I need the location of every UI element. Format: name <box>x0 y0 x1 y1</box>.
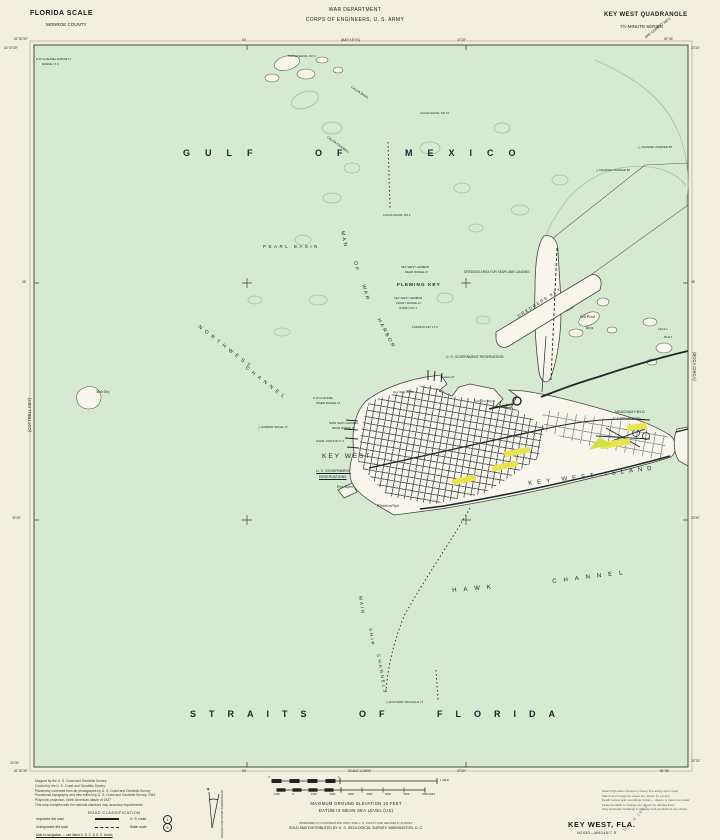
edge-coordinate: 35′ <box>691 281 695 284</box>
label-garrison-bight: Garrison Bight <box>474 400 495 404</box>
credit-line: Polyconic projection. North American dat… <box>35 798 111 802</box>
sheet-department: WAR DEPARTMENT <box>329 7 381 13</box>
state-route-badge: 5 <box>163 823 172 832</box>
sold-note: SOLD AND DISTRIBUTED BY U. S. GEOLOGICAL… <box>289 826 423 830</box>
label-mule-key: Mule Key <box>96 391 110 395</box>
marginal-note-line: Mean high water shown by heavy line alon… <box>602 789 678 793</box>
label-of: OF <box>352 261 359 273</box>
scale-feet-tick: 6000 <box>404 793 410 796</box>
edge-coordinate: 37′30″ <box>691 47 700 50</box>
scale-feet-tick: 2000 <box>330 793 336 796</box>
label-seaplane-area: DREDGED AREA FOR SEAPLANE LANDING <box>464 271 530 274</box>
label-front-range-3: (FIXED) NO 1 <box>399 307 417 310</box>
elevation-note: MAXIMUM GROUND ELEVATION 10 FEET <box>310 801 401 806</box>
edge-coordinate: 35′ <box>22 281 26 284</box>
scale-mile-end: 1 MILE <box>440 778 449 782</box>
label-fort-taylor: Fort Taylor <box>337 486 354 490</box>
edge-coordinate: 32′30″ <box>12 517 21 520</box>
label-front-range-2: FRONT RANGE LT <box>396 302 421 305</box>
label-msc-range-1: MAIN SHIP CHANNEL <box>329 422 358 425</box>
edge-coordinate: 50′ <box>242 39 246 42</box>
edge-coordinate: 32′30″ <box>691 517 700 520</box>
label-fleming-key: FLEMING KEY <box>397 283 441 288</box>
label-us-govt-2: RESERVATIONS <box>319 476 347 480</box>
scale-feet-tick: 4000 <box>367 793 373 796</box>
road-class-row1-right: U. S. route <box>130 817 146 821</box>
label-harbor-shoal-lt: △ HARBOR SHOAL LT <box>258 426 288 429</box>
label-gulf-of-mexico: GULF OF MEXICO <box>183 149 531 158</box>
label-key-west-bight: Key West Bight <box>393 391 414 395</box>
edge-coordinate: 81°45′ <box>660 770 669 773</box>
marginal-note-line: Marsh and mangrove areas are shown by sy… <box>602 794 670 798</box>
label-inner-range-2: INNER RANGE LT <box>316 402 340 405</box>
edge-coordinate: 47′30″ <box>457 39 466 42</box>
navigation-note: Aids to navigation — see latest U. S. C.… <box>36 833 113 837</box>
credit-line: Provisional topography and new edition b… <box>35 793 155 797</box>
quad-title: KEY WEST QUADRANGLE <box>604 12 688 18</box>
road-class-row1-label: Improved dirt road <box>36 817 64 821</box>
label-us-govt-1: U. S. GOVERNMENT <box>316 470 351 474</box>
sheet-designation: N2430—W8145/7.5 <box>577 831 616 835</box>
label-calda-shoal-10: CALDA SHOAL NO 10 <box>420 112 449 115</box>
credit-line: Control by the U. S. Coast and Geodetic … <box>35 784 105 788</box>
map-sheet: { "colors":{"paper":"#f2efe1","water":"#… <box>0 0 720 840</box>
label-scale-caption: SCALE 1:24000 <box>348 770 371 773</box>
label-fleming-lt: FLEMING KEY LT 2 <box>412 326 438 329</box>
label-rear-range-2: REAR RANGE LT <box>405 271 428 274</box>
label-straits-of-florida: STRAITS OF FLORIDA <box>190 710 568 719</box>
declination-diagram <box>209 792 219 828</box>
scale-feet-tick: 0 <box>293 793 294 796</box>
edge-coordinate: 24°37′30″ <box>4 47 18 50</box>
label-govt-reservation: U. S. GOVERNMENT RESERVATION <box>446 356 503 360</box>
adjoining-sheet-right: (BOCA CHICA) <box>692 352 697 381</box>
declination-star-icon: ✶ <box>206 787 210 793</box>
road-class-row2-label: Unimproved dirt road <box>36 825 68 829</box>
label-inner-range-1: N W CHANNEL <box>313 397 333 400</box>
edge-coordinate: 50′ <box>242 770 246 773</box>
sheet-county: MONROE COUNTY <box>46 22 87 27</box>
label-nw-elbow-lt: N W CHANNEL ELBOW LT <box>36 58 71 61</box>
adjoining-sheet-top: (BAY KEYS) <box>341 38 360 42</box>
label-bird-island: Bird I. <box>664 336 673 340</box>
marginal-note-line: Depth curves and soundings in feet — dat… <box>602 798 690 802</box>
label-front-range-1: KEY WEST HARBOR <box>394 297 422 300</box>
datum-note: DATUM IS MEAN SEA LEVEL (US) <box>319 808 393 813</box>
credit-line: Planimetry corrected from air photograph… <box>35 789 150 793</box>
label-nw-elbow-lt2: RANGE LT 2 <box>42 63 59 66</box>
label-whitehead-spit: Whitehead Spit <box>377 505 399 509</box>
prepared-note: PREPARED IN COOPERATION WITH THE U. S. C… <box>299 821 412 825</box>
credit-line: Mapped by the U. S. Coast and Geodetic S… <box>35 779 106 783</box>
label-naval-air-station: U. S. Naval Air Station <box>613 417 641 420</box>
scale-mile-zero: 0 <box>338 775 340 779</box>
scale-feet-tick: 1000 <box>274 793 280 796</box>
label-msc-range-2: REAR RANGE LT <box>332 427 355 430</box>
label-eastern-triangle-lt: △ EASTERN TRIANGLE LT <box>386 701 423 704</box>
road-classification-title: ROAD CLASSIFICATION <box>88 811 140 815</box>
sheet-region-title: FLORIDA SCALE <box>30 10 93 17</box>
label-meacham-field: MEACHAM FIELD <box>615 411 645 415</box>
edge-coordinate: 24°30′ <box>10 762 19 765</box>
declination-caption: APPROXIMATE MEAN DECLINATION, 1943 <box>220 790 224 840</box>
edge-coordinate: 81°52′30″ <box>14 770 28 773</box>
label-channel-marker-85: △ CHANNEL MARKER 85 <box>638 146 672 149</box>
credit-line: This map complies with the national stan… <box>35 803 143 807</box>
label-calda-shoal-1: CALDA SHOAL NO 1 <box>383 214 411 217</box>
scale-mile-half: ½ <box>268 775 270 779</box>
marginal-note-line: Features liable to change are shown by d… <box>602 803 674 807</box>
label-rear-range-1: KEY WEST HARBOR <box>401 266 429 269</box>
dashed-road-symbol <box>95 827 119 828</box>
scale-feet-tick: 7000 FEET <box>422 793 435 796</box>
scale-feet-tick: 3000 <box>348 793 354 796</box>
label-channel-marker-80: △ CHANNEL MARKER 80 <box>596 169 630 172</box>
solid-road-symbol <box>95 818 119 820</box>
label-pearl-basin: PEARL BASIN <box>263 245 320 250</box>
adjoining-sheet-left: (COTTRELL KEY) <box>27 398 32 432</box>
label-key-west: KEY WEST <box>322 454 371 461</box>
edge-coordinate: 24°30′ <box>691 760 700 763</box>
label-salt-pond-keys: Keys <box>586 326 593 330</box>
label-trumbo-pt: Trumbo Pt <box>440 376 454 380</box>
edge-coordinate: 81°45′ <box>664 38 673 41</box>
edge-coordinate: 81°52′30″ <box>14 38 28 41</box>
label-stock-island: Stock I. <box>658 328 668 332</box>
road-class-row2-right: State route <box>130 825 147 829</box>
scale-feet-tick: 5000 <box>385 793 391 796</box>
label-calda-shoal-4: CALDA SHOAL NO 4 <box>288 55 316 58</box>
sheet-name: KEY WEST, FLA. <box>568 820 635 829</box>
edge-coordinate: 47′30″ <box>457 770 466 773</box>
label-naval-station-lt: NAVAL STATION LT 2 <box>316 440 344 443</box>
scale-feet-tick: 1000 <box>311 793 317 796</box>
sheet-corps: CORPS OF ENGINEERS, U. S. ARMY <box>306 17 404 23</box>
label-salt-pond: Salt Pond <box>580 315 595 319</box>
